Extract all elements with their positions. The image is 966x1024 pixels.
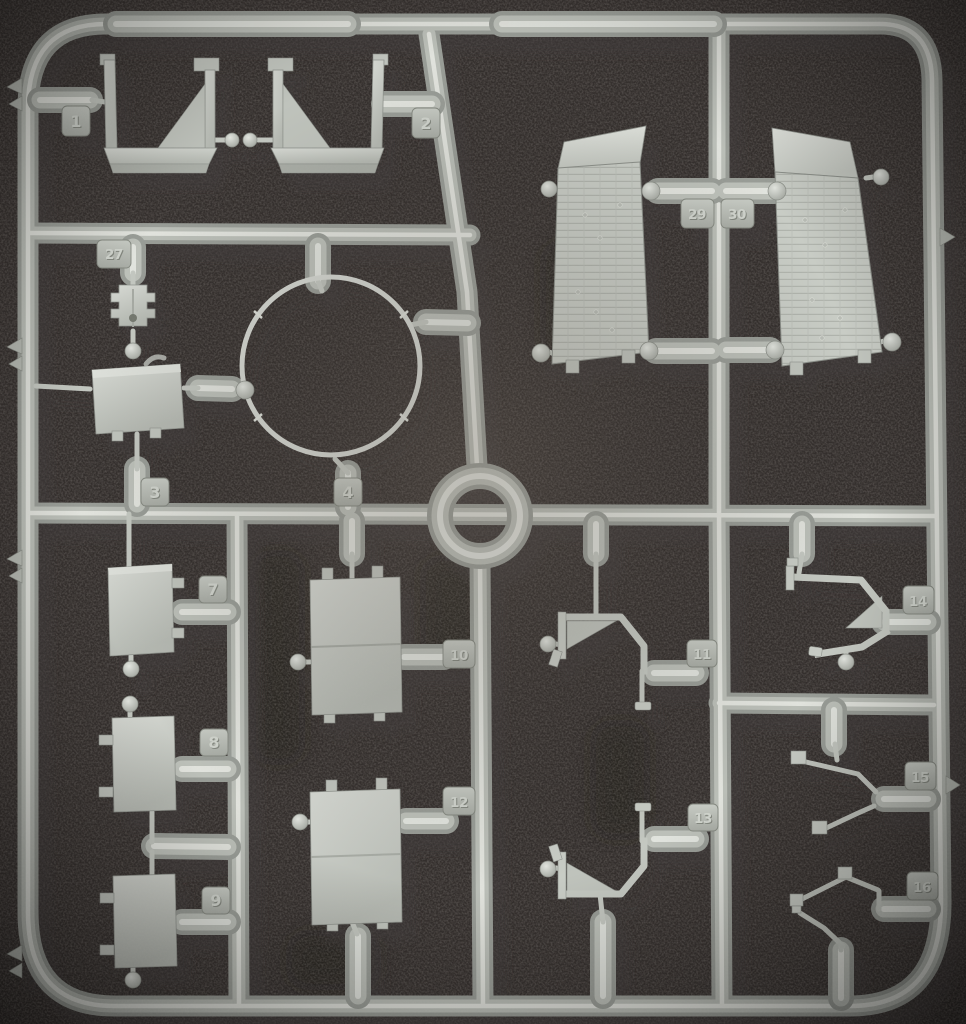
photo-stage: 1 1 2 2 27 27 3 3 4 4 29 29 30 30 7 7 [0, 0, 966, 1024]
sprue-photo: 1 1 2 2 27 27 3 3 4 4 29 29 30 30 7 7 [0, 0, 966, 1024]
photo-grain [0, 0, 966, 1024]
